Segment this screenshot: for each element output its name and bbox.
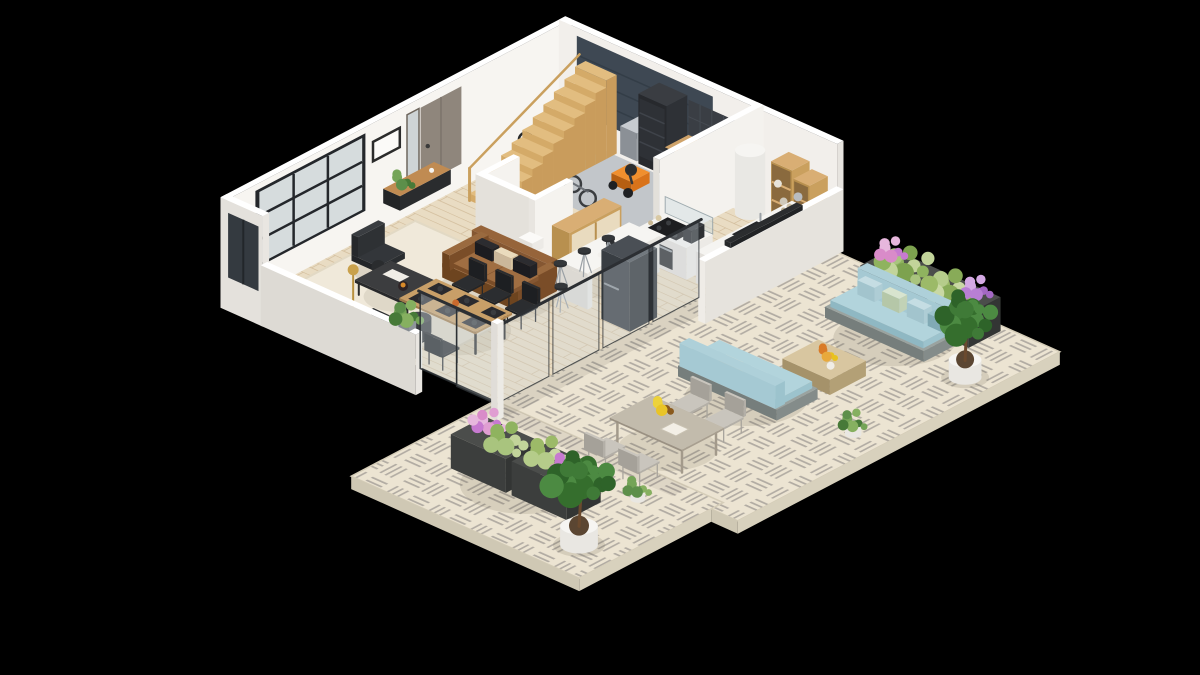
kitchen-jar-2	[648, 220, 653, 225]
corner-post	[491, 318, 504, 420]
shelf-books	[774, 180, 782, 188]
water-heater	[735, 143, 765, 220]
lawn-mower-wheel	[608, 181, 617, 190]
entry-door-handle	[426, 144, 430, 148]
sw-window	[228, 213, 258, 291]
kitchen-jar	[656, 215, 662, 221]
floor-plan-3d-svg	[0, 0, 1200, 675]
cooktop-burner-2	[656, 225, 661, 230]
floor-plan-render	[0, 0, 1200, 675]
lawn-mower-engine	[625, 164, 637, 176]
coffee-table-fruit	[401, 282, 406, 287]
shelf-storage-box	[794, 192, 803, 201]
cooktop-burner-1	[666, 220, 671, 225]
console-vase	[429, 168, 434, 173]
floor-lamp-shade	[348, 264, 359, 275]
wicker-table-dish	[827, 362, 835, 370]
lawn-mower-wheel-2	[623, 188, 633, 198]
